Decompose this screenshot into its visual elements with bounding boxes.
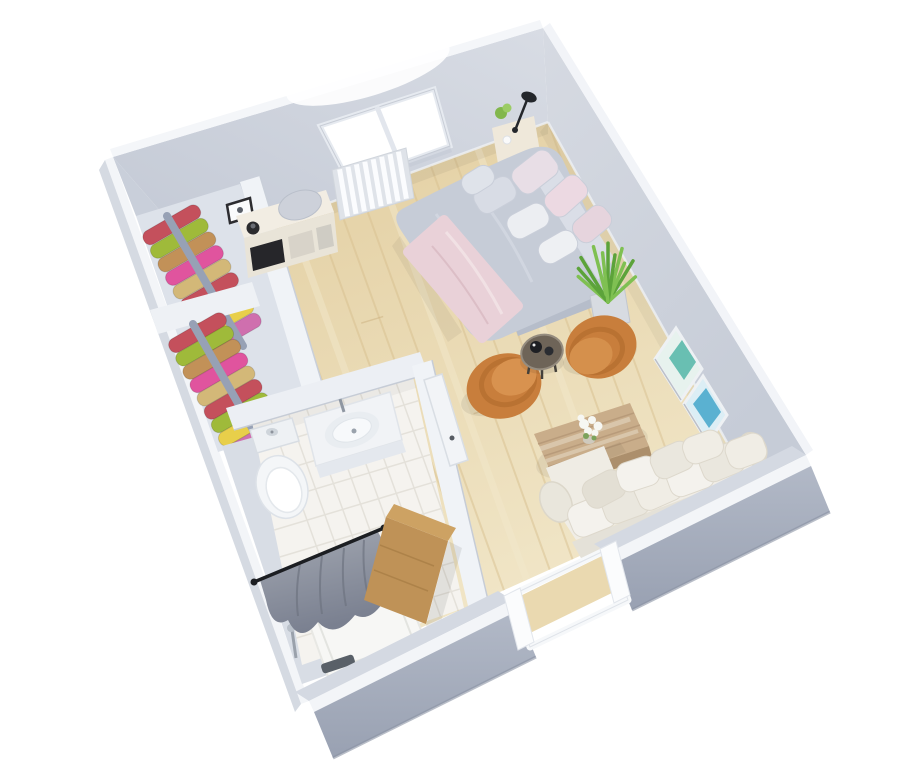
- floor-plan-render: [0, 0, 900, 765]
- nightstand-mug: [503, 136, 511, 144]
- sink-drain: [352, 429, 357, 434]
- door-handle: [450, 436, 455, 441]
- cup-2: [545, 347, 554, 356]
- cup-1: [530, 341, 542, 353]
- sideboard-shelf-2: [316, 224, 334, 250]
- apartment-3d-svg: [0, 0, 900, 765]
